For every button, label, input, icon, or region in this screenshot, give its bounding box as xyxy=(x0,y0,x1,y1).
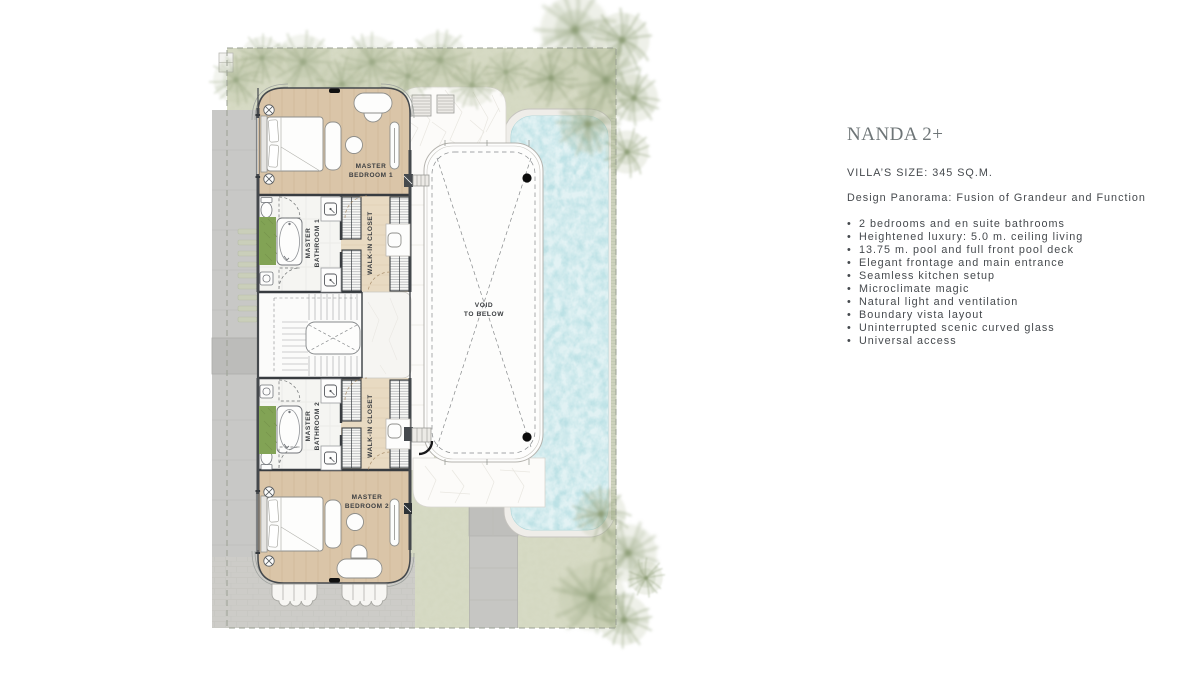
svg-text:MASTER: MASTER xyxy=(305,228,312,259)
svg-text:BEDROOM 1: BEDROOM 1 xyxy=(349,172,393,179)
svg-text:VOID: VOID xyxy=(475,302,494,309)
svg-text:WALK-IN CLOSET: WALK-IN CLOSET xyxy=(367,394,374,458)
svg-text:MASTER: MASTER xyxy=(305,411,312,442)
svg-text:BATHROOM 2: BATHROOM 2 xyxy=(314,402,321,451)
svg-text:MASTER: MASTER xyxy=(352,494,383,501)
svg-text:MASTER: MASTER xyxy=(356,163,387,170)
svg-text:BEDROOM 2: BEDROOM 2 xyxy=(345,503,389,510)
svg-text:BATHROOM 1: BATHROOM 1 xyxy=(314,219,321,268)
svg-text:WALK-IN CLOSET: WALK-IN CLOSET xyxy=(367,211,374,275)
svg-text:TO BELOW: TO BELOW xyxy=(464,311,504,318)
